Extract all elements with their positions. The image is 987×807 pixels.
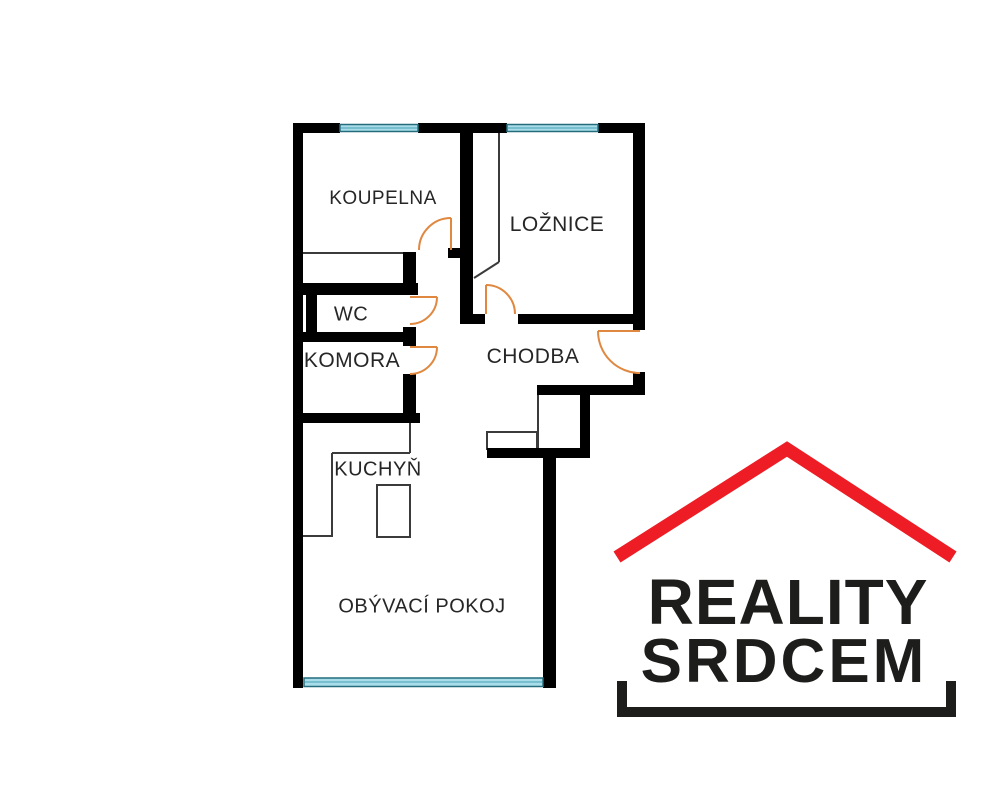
- room-label-kitchen: KUCHYŇ: [334, 459, 421, 482]
- room-label-bathroom: KOUPELNA: [329, 188, 436, 210]
- room-label-bedroom: LOŽNICE: [510, 213, 605, 237]
- bathroom-door-arc: [419, 218, 451, 250]
- entry-nook-south-wall: [487, 448, 590, 458]
- right-wall-upper: [633, 123, 645, 330]
- room-label-living-room: OBÝVACÍ POKOJ: [338, 596, 505, 619]
- wc-left-wall: [306, 295, 317, 332]
- floor-plan-page: KOUPELNA LOŽNICE WC KOMORA CHODBA KUCHYŇ…: [0, 0, 987, 807]
- living-room-east-wall: [543, 458, 556, 688]
- wc-right-wall-mid: [403, 327, 416, 346]
- bedroom-south-wall-a: [460, 314, 485, 324]
- kitchen-unit-box: [377, 485, 410, 537]
- room-label-wc: WC: [334, 304, 368, 327]
- hall-wardrobe-box: [487, 432, 537, 449]
- logo-roof: [617, 449, 953, 557]
- bedroom-south-wall-b: [518, 314, 645, 324]
- wc-south-wall: [293, 332, 410, 342]
- logo-word-reality: REALITY: [648, 570, 929, 634]
- entry-door-arc: [598, 331, 640, 373]
- pantry-door-arc: [410, 347, 437, 374]
- room-label-hallway: CHODBA: [487, 345, 580, 369]
- bedroom-closet-diagonal: [474, 262, 499, 278]
- top-wall-a: [293, 123, 340, 133]
- bedroom-door-arc: [486, 285, 515, 314]
- left-outer-wall: [293, 123, 303, 688]
- bathroom-bedroom-wall: [460, 123, 473, 314]
- room-label-pantry: KOMORA: [304, 349, 400, 373]
- logo-word-srdcem: SRDCEM: [641, 631, 928, 693]
- pantry-south-wall: [293, 413, 420, 423]
- pantry-right-wall: [403, 374, 416, 414]
- wc-north-wall: [293, 283, 418, 295]
- wc-door-arc: [410, 297, 437, 324]
- entry-nook-east-wall: [580, 385, 590, 458]
